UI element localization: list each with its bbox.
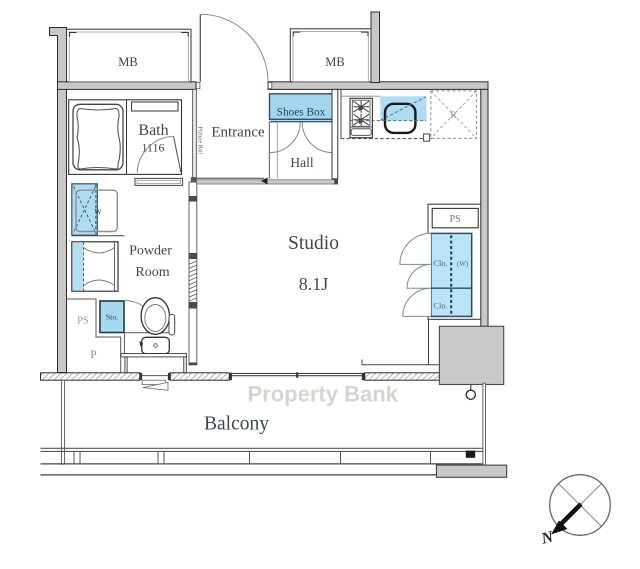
svg-text:Sto.: Sto.: [106, 313, 118, 322]
svg-text:(W): (W): [457, 260, 469, 268]
svg-text:R: R: [450, 111, 457, 121]
svg-text:Shoes Box: Shoes Box: [277, 106, 326, 118]
svg-text:PS: PS: [449, 214, 460, 225]
svg-text:MB: MB: [325, 55, 344, 69]
svg-text:Powder: Powder: [129, 244, 172, 259]
svg-text:Clo.: Clo.: [433, 301, 447, 311]
svg-text:W: W: [94, 207, 102, 216]
svg-text:PS: PS: [77, 316, 89, 327]
svg-text:Picture Rail: Picture Rail: [197, 127, 203, 155]
svg-text:8.1J: 8.1J: [299, 274, 329, 294]
svg-text:P: P: [90, 349, 96, 361]
svg-text:1116: 1116: [141, 141, 164, 155]
svg-text:Balcony: Balcony: [204, 414, 269, 435]
svg-text:Entrance: Entrance: [211, 124, 265, 140]
svg-text:Hall: Hall: [290, 155, 313, 170]
svg-text:Studio: Studio: [288, 233, 339, 254]
svg-text:Property Bank: Property Bank: [248, 382, 399, 407]
svg-text:Bath: Bath: [138, 122, 168, 139]
svg-text:MB: MB: [118, 55, 137, 69]
svg-text:Clo.: Clo.: [433, 258, 447, 268]
svg-text:Room: Room: [135, 265, 169, 280]
